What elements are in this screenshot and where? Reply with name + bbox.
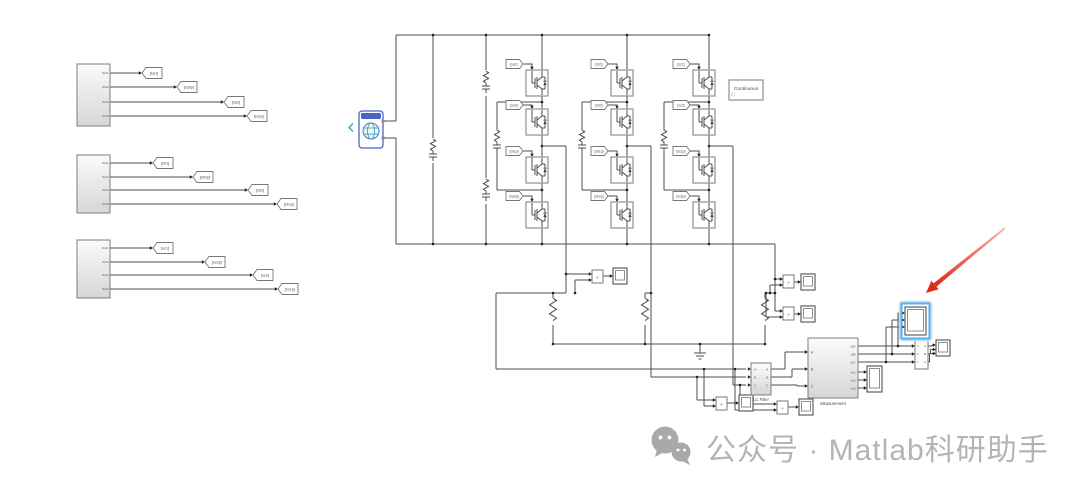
igbt-block[interactable] (526, 202, 548, 228)
goto-tag[interactable]: [sb1p] (277, 199, 297, 210)
out-port-label: Out4 (102, 114, 109, 118)
gating-subsystem[interactable]: Out1Out2Out3Out4 (77, 155, 110, 213)
dc-source-block[interactable] (359, 111, 385, 148)
measurement-input-label: B (811, 367, 813, 371)
measurement-output-label: Vs2 (851, 378, 856, 382)
signal-input-port-icon (349, 124, 353, 132)
from-tag-label: [sc2p] (676, 194, 685, 198)
goto-tag-label: [sa1p] (254, 114, 265, 119)
scope-block[interactable] (799, 399, 813, 415)
measurement-output-label: vSA (850, 344, 855, 348)
out-port-label: Out1 (102, 71, 109, 75)
lc-filter-label: LC Filter (753, 397, 769, 402)
out-port-label: Out4 (102, 287, 109, 291)
abc-signal-block[interactable]: aAbBcC (915, 340, 928, 369)
goto-tag[interactable]: [sb2] (248, 185, 268, 196)
goto-tag-label: [sa2] (232, 100, 240, 105)
measurement-output-label: Vs3 (851, 386, 856, 390)
goto-tag[interactable]: [sb2p] (193, 172, 213, 183)
scope-vs-block[interactable] (867, 366, 882, 392)
out-port-label: Out3 (102, 273, 109, 277)
out-port-label: Out2 (102, 260, 109, 264)
igbt-block[interactable] (693, 70, 715, 96)
igbt-block[interactable] (693, 157, 715, 183)
from-tag[interactable]: [sb2] (591, 101, 608, 110)
lc-port-left-label: B (754, 375, 756, 379)
voltage-measurement-glyph: v (788, 312, 790, 317)
voltage-measurement-block[interactable]: v (783, 307, 794, 320)
igbt-block[interactable] (526, 157, 548, 183)
out-port-label: Out1 (102, 161, 109, 165)
wechat-bubbles-icon (648, 424, 696, 470)
goto-tag-label: [sb2p] (200, 175, 211, 180)
goto-tag-label: [sc2p] (212, 260, 222, 265)
igbt-block[interactable] (611, 70, 633, 96)
out-port-label: Out4 (102, 202, 109, 206)
goto-tag-label: [sc2] (261, 273, 269, 278)
out-port-label: Out2 (102, 85, 109, 89)
powergui-continuous-label: Continuous (734, 86, 759, 92)
from-tag-label: [sb2p] (594, 194, 603, 198)
abc-right-label: C (924, 360, 926, 364)
measurement-output-label: Vs1 (851, 370, 856, 374)
from-tag[interactable]: [sa2] (506, 101, 523, 110)
goto-tag-label: [sc1p] (285, 287, 295, 292)
scope-block[interactable] (739, 395, 753, 411)
goto-tag-label: [sb1p] (284, 202, 295, 207)
from-tag[interactable]: [sc1] (673, 60, 690, 69)
from-tag-label: [sb1] (595, 62, 602, 66)
goto-tag[interactable]: [sc1p] (278, 284, 298, 295)
out-port-label: Out3 (102, 100, 109, 104)
from-tag-label: [sb1p] (594, 149, 603, 153)
voltage-measurement-block[interactable]: v (592, 270, 603, 283)
igbt-block[interactable] (693, 202, 715, 228)
goto-tag[interactable]: [sa1] (142, 68, 162, 79)
from-tag[interactable]: [sa1p] (506, 147, 523, 156)
from-tag-label: [sc1p] (676, 149, 685, 153)
voltage-measurement-block[interactable]: v (777, 401, 788, 414)
from-tag[interactable]: [sc2p] (673, 192, 690, 201)
measurement-label: Measurement (820, 401, 846, 406)
lc-port-right-label: B (766, 375, 768, 379)
goto-tag[interactable]: [sa2p] (177, 82, 197, 93)
from-tag[interactable]: [sb2p] (591, 192, 608, 201)
goto-tag[interactable]: [sc2p] (205, 257, 225, 268)
goto-tag[interactable]: [sa2] (224, 97, 244, 108)
from-tag[interactable]: [sc1p] (673, 147, 690, 156)
voltage-measurement-glyph: v (788, 280, 790, 285)
from-tag-label: [sc1] (677, 62, 684, 66)
from-tag-label: [sa1] (510, 62, 517, 66)
goto-tag[interactable]: [sc2] (253, 270, 273, 281)
goto-tag[interactable]: [sc1] (153, 243, 173, 254)
from-tag-label: [sa2] (510, 103, 517, 107)
watermark: 公众号 · Matlab科研助手 (648, 424, 1049, 470)
from-tag[interactable]: [sb1p] (591, 147, 608, 156)
goto-tag-label: [sb1] (161, 161, 169, 166)
measurement-output-label: vSC (850, 360, 855, 364)
scope-block[interactable] (801, 306, 815, 322)
from-tag[interactable]: [sa1] (506, 60, 523, 69)
igbt-block[interactable] (611, 157, 633, 183)
out-port-label: Out3 (102, 188, 109, 192)
simulink-canvas: Out1Out2Out3Out4[sa1][sa2p][sa2][sa1p]Ou… (0, 0, 1080, 491)
goto-tag[interactable]: [sb1] (153, 158, 173, 169)
voltage-measurement-glyph: v (782, 406, 784, 411)
from-tag-label: [sc2] (677, 103, 684, 107)
abc-right-label: A (924, 344, 926, 348)
watermark-text: 公众号 · Matlab科研助手 (706, 425, 1049, 469)
igbt-block[interactable] (693, 109, 715, 135)
from-tag[interactable]: [sc2] (673, 101, 690, 110)
out-port-label: Out1 (102, 246, 109, 250)
from-tag[interactable]: [sb1] (591, 60, 608, 69)
voltage-measurement-glyph: v (597, 275, 599, 280)
out-port-label: Out2 (102, 175, 109, 179)
powergui-block[interactable]: Continuous (729, 80, 763, 100)
goto-tag-label: [sb2] (256, 188, 264, 193)
igbt-block[interactable] (611, 202, 633, 228)
scope-block[interactable] (801, 274, 815, 290)
abc-right-label: B (924, 352, 926, 356)
lc-filter-block[interactable]: AABBCCLC Filter (751, 363, 771, 402)
from-tag-label: [sb2] (595, 103, 602, 107)
scope-abc-block[interactable] (936, 340, 950, 356)
voltage-measurement-glyph: v (721, 402, 723, 407)
measurement-output-label: vSB (850, 352, 855, 356)
gating-subsystem[interactable]: Out1Out2Out3Out4 (77, 240, 110, 298)
lc-port-left-label: A (754, 367, 756, 371)
igbt-block[interactable] (526, 109, 548, 135)
selected-scope-block[interactable] (905, 307, 926, 335)
from-tag-label: [sa1p] (509, 149, 518, 153)
from-tag[interactable]: [sa2p] (506, 192, 523, 201)
scope-block[interactable] (613, 268, 627, 284)
voltage-measurement-block[interactable]: v (783, 275, 794, 288)
gating-subsystem[interactable]: Out1Out2Out3Out4 (77, 64, 110, 126)
model-diagram: Out1Out2Out3Out4[sa1][sa2p][sa2][sa1p]Ou… (0, 0, 1080, 491)
igbt-block[interactable] (526, 70, 548, 96)
goto-tag-label: [sa2p] (184, 85, 195, 90)
goto-tag-label: [sa1] (150, 71, 158, 76)
voltage-measurement-block[interactable]: v (716, 397, 727, 410)
blocks: Out1Out2Out3Out4[sa1][sa2p][sa2][sa1p]Ou… (77, 60, 950, 416)
goto-tag[interactable]: [sa1p] (247, 111, 267, 122)
goto-tag-label: [sc1] (161, 246, 169, 251)
lc-port-right-label: A (766, 367, 768, 371)
measurement-subsystem[interactable]: ABCvSAvSBvSCVs1Vs2Vs3Measurement (808, 338, 858, 406)
annotation-arrow (926, 227, 1006, 293)
from-tag-label: [sa2p] (509, 194, 518, 198)
igbt-block[interactable] (611, 109, 633, 135)
